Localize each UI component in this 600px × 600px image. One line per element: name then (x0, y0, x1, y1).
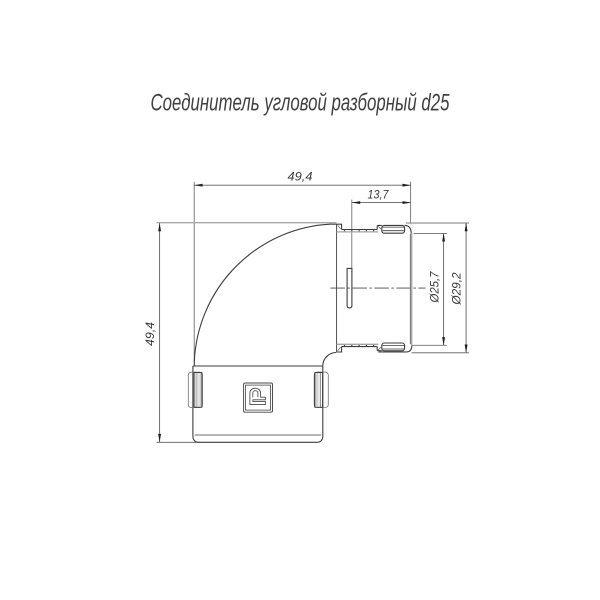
svg-text:49,4: 49,4 (145, 322, 157, 346)
svg-text:13,7: 13,7 (368, 189, 390, 201)
svg-text:Соединитель угловой разборный: Соединитель угловой разборный d25 (151, 90, 450, 117)
svg-text:Ø25,7: Ø25,7 (427, 270, 441, 303)
svg-text:49,4: 49,4 (288, 171, 313, 183)
svg-text:Ø29,2: Ø29,2 (450, 272, 464, 305)
